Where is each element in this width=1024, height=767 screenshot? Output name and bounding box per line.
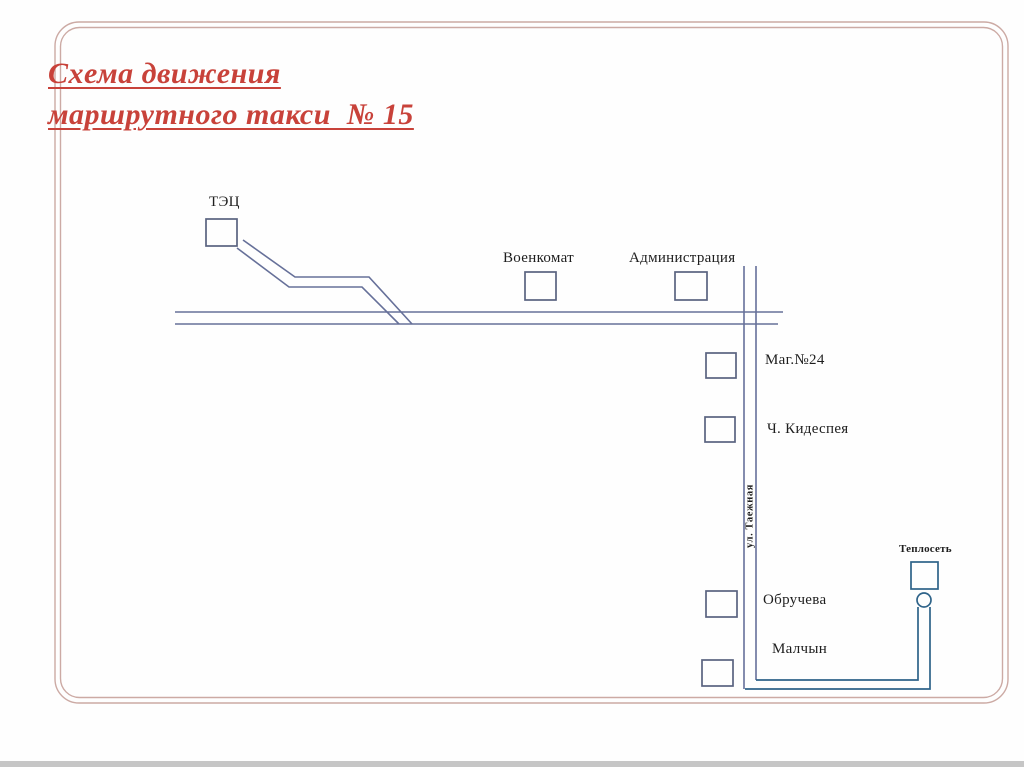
slide: Схема движения маршрутного такси № 15 ТЭ… — [0, 0, 1024, 767]
label-voenkomat: Военкомат — [503, 250, 574, 267]
label-kidespeya: Ч. Кидеспея — [767, 421, 849, 438]
stop-box-shop24 — [706, 353, 736, 378]
stop-box-kidespeya — [705, 417, 735, 442]
label-malchyn: Малчын — [772, 641, 827, 658]
label-street-tayozhnaya: ул. Таежная — [745, 484, 756, 548]
label-shop24: Маг.№24 — [765, 352, 825, 369]
loop-turnaround-circle — [917, 593, 931, 607]
label-teploset: Теплосеть — [899, 543, 952, 555]
label-tec: ТЭЦ — [209, 194, 240, 211]
stop-box-voenkomat — [525, 272, 556, 300]
label-obrucheva: Обручева — [763, 592, 826, 609]
label-administration: Администрация — [629, 250, 735, 267]
stop-box-tec — [206, 219, 237, 246]
slide-title-line2: маршрутного такси № 15 — [48, 94, 414, 135]
bottom-edge-strip — [0, 761, 1024, 767]
slide-title: Схема движения маршрутного такси № 15 — [48, 53, 414, 135]
stop-box-malchyn — [702, 660, 733, 686]
stop-box-obrucheva — [706, 591, 737, 617]
stop-box-teploset — [911, 562, 938, 589]
slide-title-line1: Схема движения — [48, 53, 414, 94]
stop-box-administration — [675, 272, 707, 300]
